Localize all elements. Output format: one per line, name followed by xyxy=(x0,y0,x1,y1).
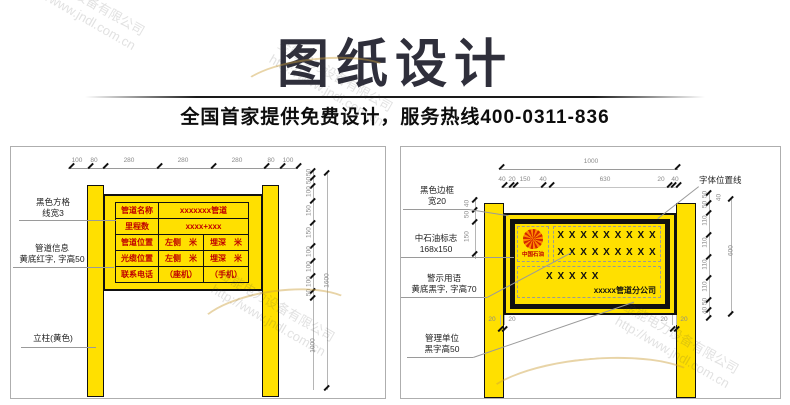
gap-line xyxy=(672,315,673,325)
page-subtitle: 全国首家提供免费设计，服务热线400-0311-836 xyxy=(0,102,790,129)
page: 金能电力设备有限公司 http://www.jndl.com.cn 金能电力设备… xyxy=(0,0,790,405)
callout-font-position-line: 字体位置线 xyxy=(699,175,769,186)
callout-text: 中石油标志 xyxy=(415,233,458,243)
leader-line xyxy=(21,347,96,348)
dim-label: 80 xyxy=(84,157,104,164)
dim-label-width: 1000 xyxy=(561,158,621,165)
logo-position-box: 中国石油 xyxy=(517,226,549,262)
leader-line xyxy=(407,357,473,358)
callout-text: 黑色边框 xyxy=(420,185,454,195)
cell-value: 左侧 米 xyxy=(158,251,203,266)
dim-label-lower-height: 1000 xyxy=(310,334,317,358)
dim-label: 110 xyxy=(702,255,709,275)
dim-label: 110 xyxy=(702,233,709,253)
cell-label: 里程数 xyxy=(116,219,158,234)
gap-dim: 20 xyxy=(658,316,670,323)
callout-management-unit: 管理单位 黑字高50 xyxy=(411,333,473,355)
callout-black-grid: 黑色方格 线宽3 xyxy=(25,197,81,219)
leader-line xyxy=(401,257,514,258)
callout-text: 管理单位 xyxy=(425,333,459,343)
petrochina-logo-icon xyxy=(523,229,543,249)
logo-text: 中国石油 xyxy=(518,250,548,258)
leader-line xyxy=(403,209,469,210)
dim-label-board-height: 600 xyxy=(728,239,735,263)
callout-text: 立柱(黄色) xyxy=(33,333,73,343)
pipeline-sign-table: 管道名称 xxxxxxx管道 里程数 xxxx+xxx 管道位置 左侧 米 埋深… xyxy=(115,202,249,283)
lower-text-box: X X X X X xxxxx管道分公司 xyxy=(517,266,661,298)
left-sign-post-left xyxy=(87,185,104,397)
gap-dim: 20 xyxy=(506,316,518,323)
dim-label-total-height: 1600 xyxy=(324,269,331,293)
dim-label: 150 xyxy=(306,223,313,243)
dim-label: 150 xyxy=(517,176,533,183)
warning-row-3: X X X X X xyxy=(546,268,599,285)
callout-text: 线宽3 xyxy=(42,208,64,218)
callout-petro-logo: 中石油标志 168x150 xyxy=(401,233,471,255)
table-row: 管道名称 xxxxxxx管道 xyxy=(116,203,248,218)
cell-label: 联系电话 xyxy=(116,267,158,282)
cell-label: 光缆位置 xyxy=(116,251,158,266)
callout-text: 字体位置线 xyxy=(699,175,742,185)
leader-line xyxy=(401,297,487,298)
gap-dim: 20 xyxy=(486,316,498,323)
dim-label: 100 xyxy=(278,157,298,164)
callout-text: 管道信息 xyxy=(35,243,69,253)
dim-label: 280 xyxy=(173,157,193,164)
dim-label: 630 xyxy=(593,176,617,183)
gap-dim: 20 xyxy=(678,316,690,323)
dim-line-sub xyxy=(501,187,678,188)
dim-label: 150 xyxy=(306,201,313,221)
dim-label: 40 xyxy=(667,176,683,183)
gap-line xyxy=(500,315,501,325)
callout-black-frame: 黑色边框 宽20 xyxy=(405,185,469,207)
page-title: 图纸设计 xyxy=(0,22,790,97)
cell-value: xxxxxxx管道 xyxy=(158,203,248,218)
table-row: 里程数 xxxx+xxx xyxy=(116,218,248,234)
callout-post: 立柱(黄色) xyxy=(25,333,81,344)
callout-text: 黄底红字, 字高50 xyxy=(19,254,84,264)
cell-value: 埋深 米 xyxy=(203,235,248,250)
cell-value: xxxx+xxx xyxy=(158,219,248,234)
right-sign-post-right xyxy=(676,203,696,398)
dim-label: 100 xyxy=(306,182,313,202)
cell-value: （手机） xyxy=(203,267,248,282)
cell-label: 管道位置 xyxy=(116,235,158,250)
dim-label: 280 xyxy=(227,157,247,164)
dim-label: 50 xyxy=(306,283,313,303)
dim-label: 280 xyxy=(119,157,139,164)
dim-label: 40 xyxy=(702,301,709,321)
right-sign-post-left xyxy=(484,203,504,398)
company-name: xxxxx管道分公司 xyxy=(594,285,656,296)
left-sign-post-right xyxy=(262,185,279,397)
black-frame: 中国石油 X X X X X X X X X X X X X X X X X X… xyxy=(510,219,670,309)
right-sign-board: 中国石油 X X X X X X X X X X X X X X X X X X… xyxy=(504,213,676,315)
leader-line xyxy=(13,267,114,268)
cell-label: 管道名称 xyxy=(116,203,158,218)
dim-label: 40 xyxy=(535,176,551,183)
table-row: 光缆位置 左侧 米 埋深 米 xyxy=(116,250,248,266)
dim-line-width xyxy=(501,169,678,170)
callout-text: 黄底黑字, 字高70 xyxy=(411,284,476,294)
callout-pipeline-info: 管道信息 黄底红字, 字高50 xyxy=(13,243,91,265)
gap-line xyxy=(676,315,677,325)
callout-text: 宽20 xyxy=(428,196,446,206)
leader-line xyxy=(19,220,116,221)
right-drawing-panel: 中国石油 X X X X X X X X X X X X X X X X X X… xyxy=(400,146,781,399)
callout-warning-words: 警示用语 黄底黑字, 字高70 xyxy=(401,273,487,295)
callout-text: 黑色方格 xyxy=(36,197,70,207)
cell-value: 埋深 米 xyxy=(203,251,248,266)
title-divider xyxy=(85,96,705,98)
table-row: 联系电话 （座机） （手机） xyxy=(116,266,248,282)
callout-text: 黑字高50 xyxy=(425,344,460,354)
callout-text: 168x150 xyxy=(420,244,453,254)
warning-row-1: X X X X X X X X X xyxy=(554,227,660,244)
left-drawing-panel: 管道名称 xxxxxxx管道 里程数 xxxx+xxx 管道位置 左侧 米 埋深… xyxy=(10,146,386,399)
dim-label: 110 xyxy=(702,211,709,231)
cell-value: 左侧 米 xyxy=(158,235,203,250)
warning-text-box: X X X X X X X X X X X X X X X X X X xyxy=(553,226,661,262)
cell-value: （座机） xyxy=(158,267,203,282)
callout-text: 警示用语 xyxy=(427,273,461,283)
dim-label-offset: 40 xyxy=(716,190,723,206)
table-row: 管道位置 左侧 米 埋深 米 xyxy=(116,234,248,250)
tick-mark xyxy=(727,311,733,317)
gap-line xyxy=(504,315,505,325)
